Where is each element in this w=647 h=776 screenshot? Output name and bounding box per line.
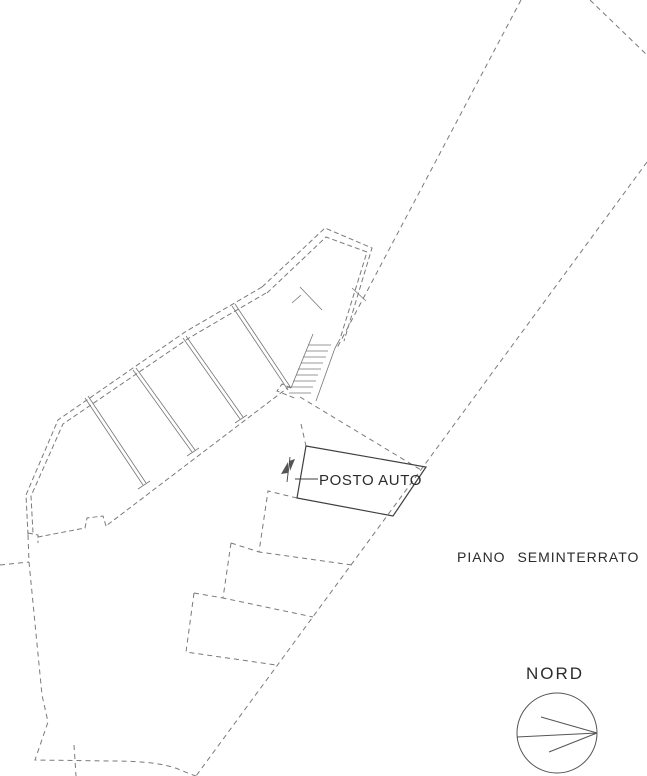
divider-1 (85, 396, 146, 485)
trapezoid-partition-tick (292, 295, 301, 303)
position-marker-icon (281, 457, 295, 482)
stair-edge-right (316, 348, 335, 401)
divider-3-foot (235, 415, 247, 423)
north-label: NORD (526, 664, 584, 684)
divider-2-foot (187, 448, 199, 456)
compass-circle (517, 693, 597, 773)
site-boundary-lines (0, 0, 647, 776)
boundary-left-edge-stub (0, 562, 29, 565)
trapezoid-room-outer (262, 228, 372, 341)
garage-edge-bump (38, 516, 106, 537)
divider-1-foot (138, 481, 150, 489)
wall-outer (26, 287, 262, 535)
terrace-step-1 (259, 491, 352, 565)
terrace-step-2-top (231, 543, 259, 552)
divider-2 (133, 368, 195, 452)
trapezoid-partition (300, 287, 322, 310)
boundary-left-bottom (28, 535, 196, 776)
boundary-line-upper (337, 0, 521, 348)
wall-inner (31, 293, 266, 533)
stair-landing-edge (277, 384, 297, 399)
north-compass (517, 693, 597, 773)
compass-needle-lines (517, 717, 597, 752)
wall-bottom-notch (28, 533, 38, 543)
terrace-step-2 (223, 543, 313, 617)
parking-dividers (85, 287, 366, 489)
stair-edge-left (291, 334, 313, 388)
terrace-step-3-top (194, 593, 223, 598)
floor-plan-drawing: POSTO AUTO PIANO SEMINTERRATO NORD (0, 0, 647, 776)
divider-4 (232, 304, 291, 390)
marker-flag-right (289, 459, 295, 471)
boundary-bottom-tick (74, 745, 76, 776)
staircase (289, 334, 340, 401)
divider-3 (183, 336, 243, 419)
floor-title-label: PIANO SEMINTERRATO (457, 549, 639, 565)
boundary-link-stair-to-parking (300, 397, 421, 470)
terrace-step-3 (186, 593, 276, 665)
terrace-steps (186, 491, 352, 665)
garage-walls (26, 228, 372, 543)
stub-above-parking-space (301, 424, 306, 446)
stair-treads (289, 345, 331, 393)
plan-linework (0, 0, 647, 776)
boundary-corner-top-right (590, 0, 647, 55)
marker-flag-left (281, 462, 288, 474)
parking-space-label: POSTO AUTO (319, 472, 422, 489)
garage-open-edge (106, 386, 290, 526)
